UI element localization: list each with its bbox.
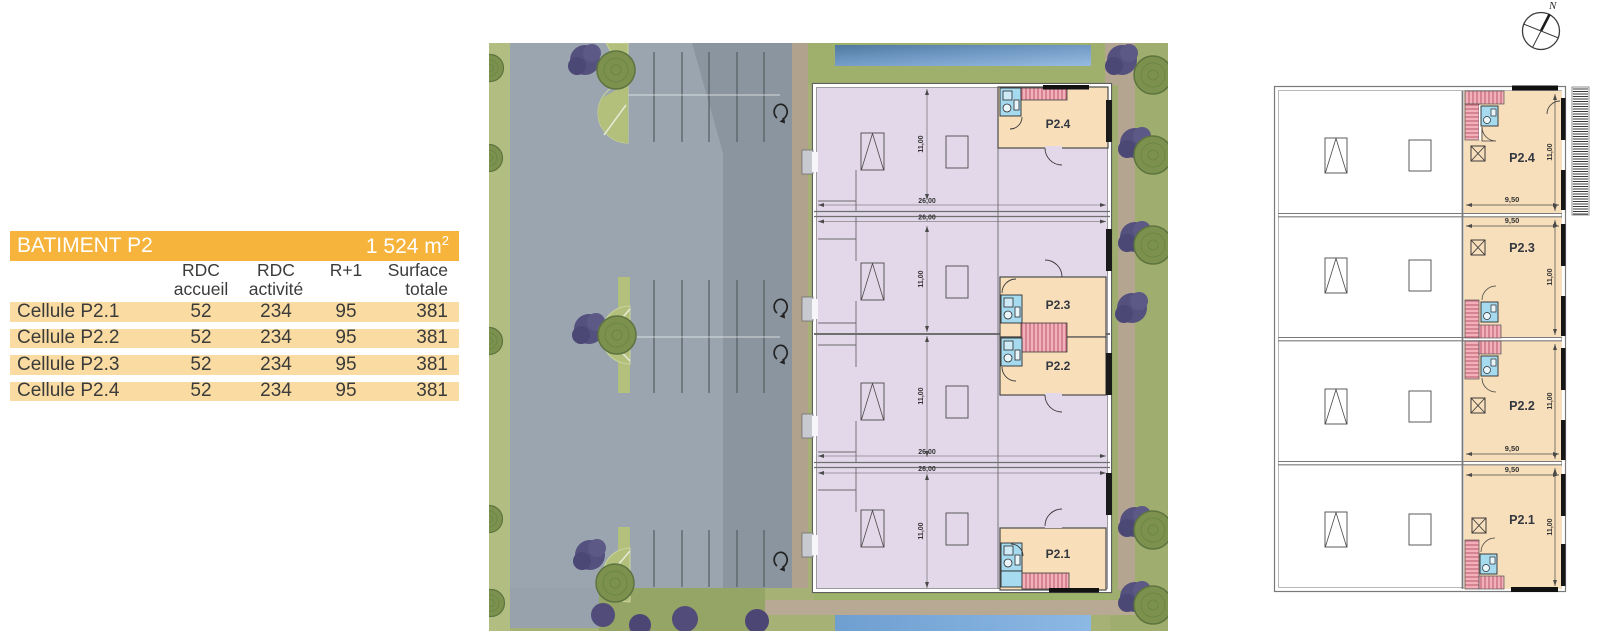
svg-text:11,00: 11,00	[918, 135, 925, 152]
svg-text:P2.2: P2.2	[1509, 399, 1535, 413]
svg-text:P2.1: P2.1	[1046, 547, 1071, 561]
svg-text:P2.3: P2.3	[1509, 241, 1535, 255]
svg-text:P2.2: P2.2	[1046, 359, 1071, 373]
svg-text:26,00: 26,00	[918, 466, 936, 473]
svg-text:11,00: 11,00	[1547, 143, 1554, 160]
svg-text:9,50: 9,50	[1505, 444, 1520, 453]
svg-text:P2.1: P2.1	[1509, 513, 1535, 527]
svg-text:P2.4: P2.4	[1046, 117, 1071, 131]
svg-text:11,00: 11,00	[918, 387, 925, 404]
svg-text:11,00: 11,00	[918, 270, 925, 287]
svg-text:11,00: 11,00	[1547, 392, 1554, 409]
svg-text:N: N	[1548, 0, 1557, 12]
svg-text:26,00: 26,00	[918, 215, 936, 222]
svg-text:9,50: 9,50	[1505, 216, 1520, 225]
svg-text:9,50: 9,50	[1505, 195, 1520, 204]
svg-text:P2.4: P2.4	[1509, 151, 1535, 165]
svg-text:11,00: 11,00	[1547, 518, 1554, 535]
svg-text:9,50: 9,50	[1505, 465, 1520, 474]
svg-text:11,00: 11,00	[1547, 268, 1554, 285]
svg-text:P2.3: P2.3	[1046, 298, 1071, 312]
svg-text:11,00: 11,00	[918, 522, 925, 539]
